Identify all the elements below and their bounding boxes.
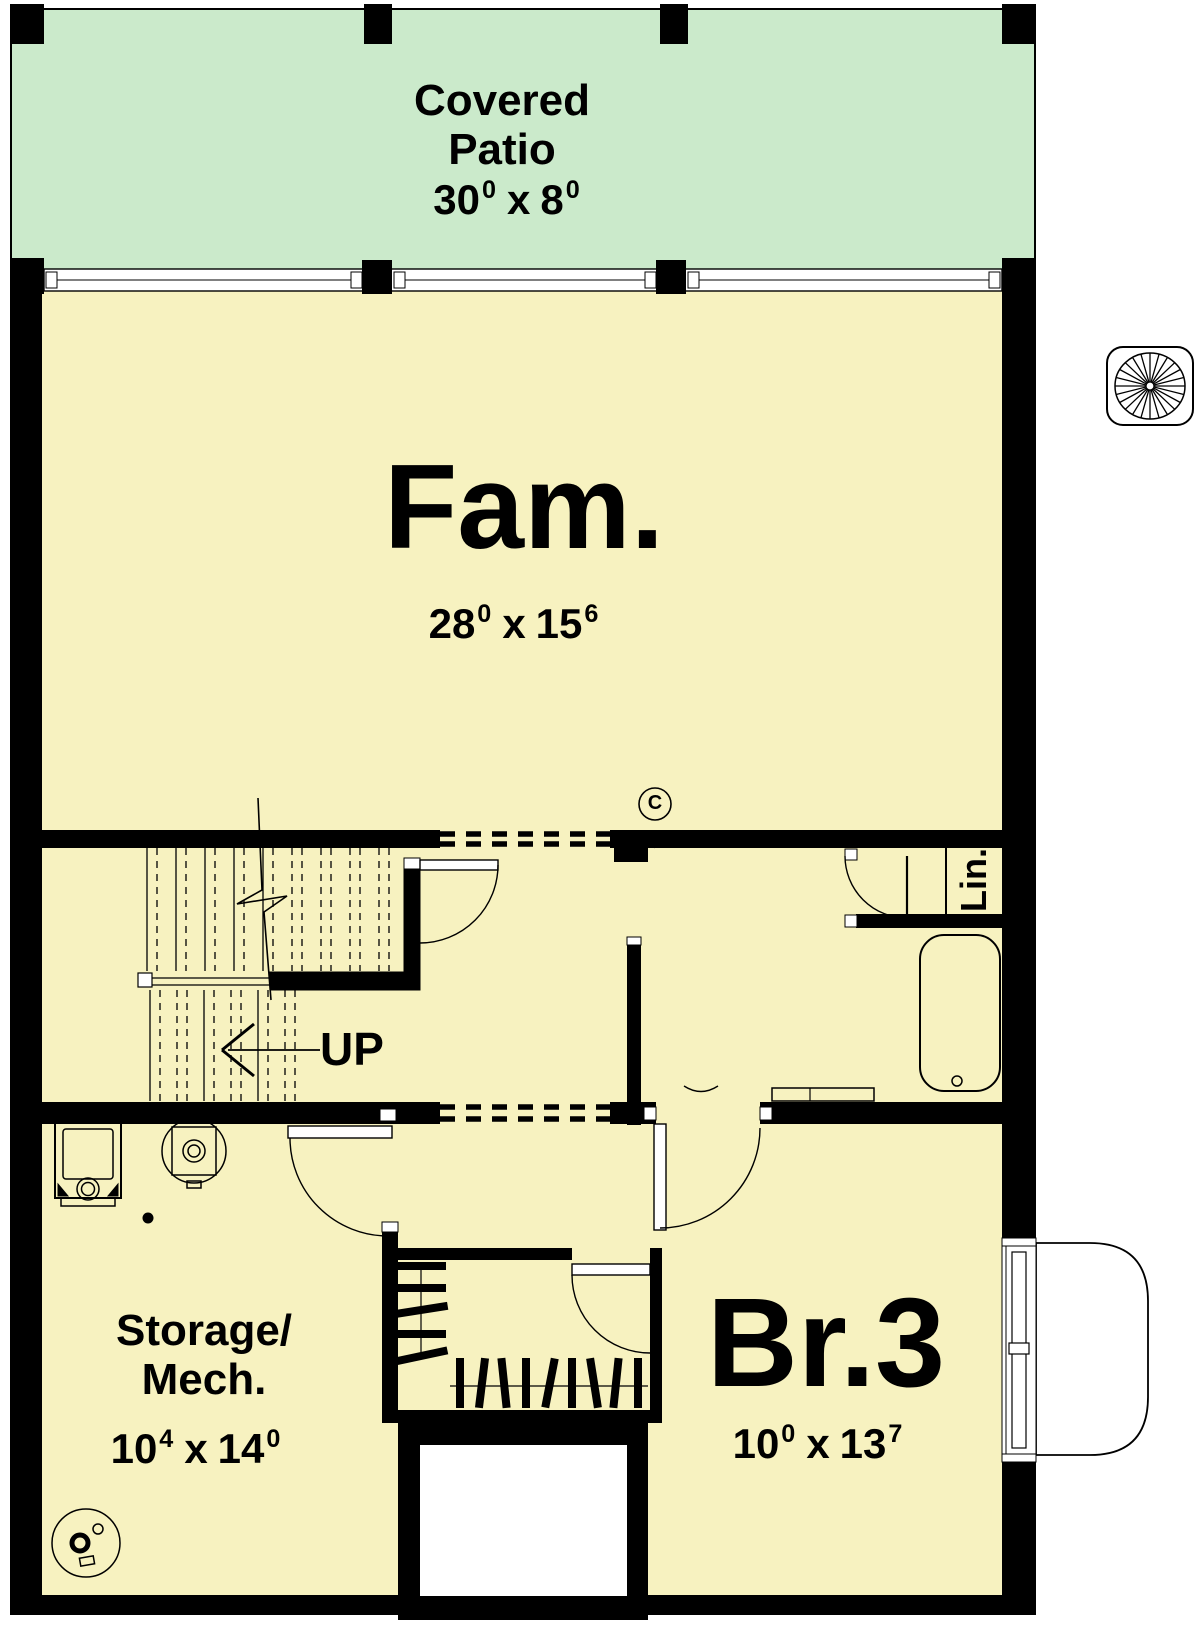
floor-plan: Covered Patio 300x80 Fam. 280x156 C UP L…: [0, 0, 1200, 1628]
storage-mech-label: Storage/ Mech.: [116, 1306, 292, 1405]
divider-cap: [627, 937, 641, 945]
front-window-wall: [44, 269, 1002, 291]
ceiling-marker-letter: C: [648, 792, 662, 814]
closet-jamb: [382, 1222, 398, 1232]
bedroom3-label: Br.3: [707, 1272, 945, 1413]
mechanical-chase: [398, 1423, 648, 1620]
up-label: UP: [320, 1024, 384, 1076]
storage-mech-dimension: 104x140: [111, 1425, 282, 1473]
compass-rose-icon: [1107, 347, 1193, 425]
floor-drain-icon: [143, 1213, 154, 1224]
family-room-label: Fam.: [384, 440, 664, 574]
bedroom3-dimension: 100x137: [733, 1420, 904, 1468]
patio-label: Covered Patio: [414, 76, 590, 175]
egress-window: [1002, 1238, 1036, 1462]
patio-dimension: 300x80: [433, 176, 580, 224]
window-well: [1036, 1243, 1148, 1455]
linen-closet-label: Lin.: [954, 848, 994, 912]
family-room-dimension: 280x156: [429, 600, 600, 648]
linen-door-jamb: [845, 915, 857, 927]
